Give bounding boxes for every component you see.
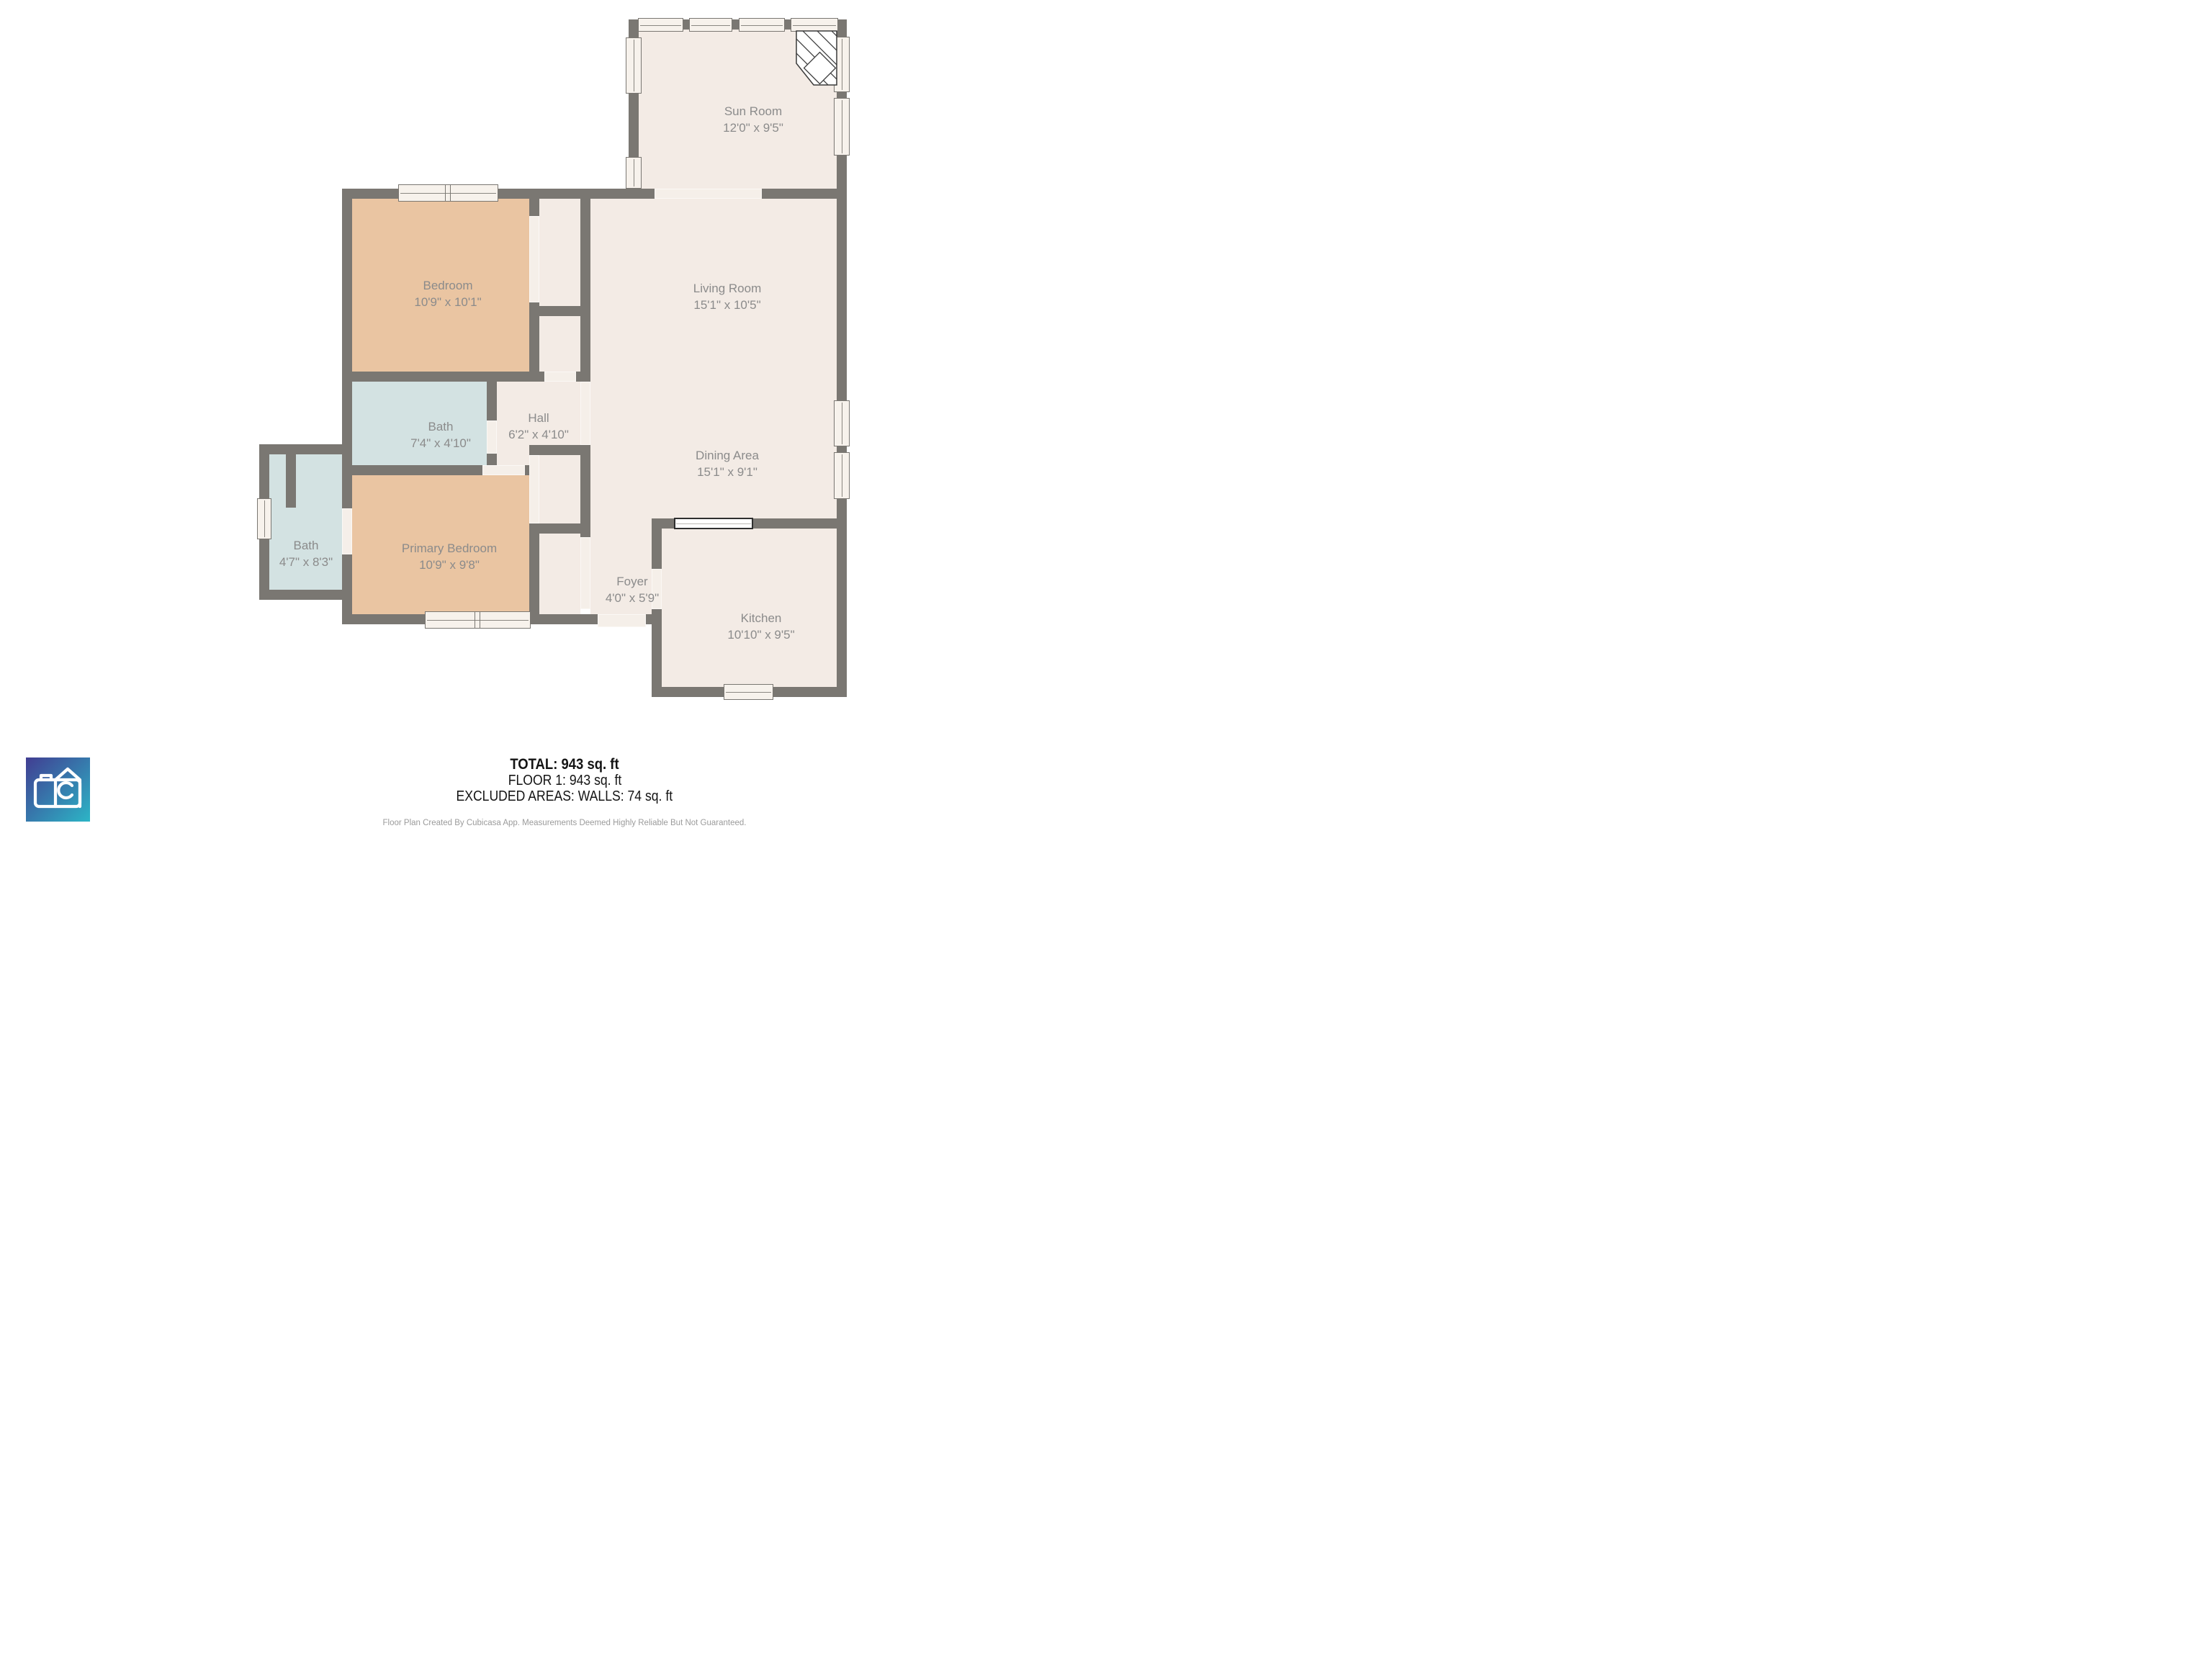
total-area-text: TOTAL: 943 sq. ft [0, 756, 1129, 773]
room-label-foyer: Foyer4'0" x 5'9" [606, 573, 659, 606]
opening-hall-dining [580, 382, 590, 445]
room-kitchen-floor [662, 529, 837, 687]
wall-segment [580, 445, 590, 537]
corner-hatch-icon [795, 30, 838, 86]
room-label-bath-2: Bath4'7" x 8'3" [279, 537, 333, 570]
wall-segment [525, 465, 529, 475]
floor-plan-page: Sun Room12'0" x 9'5" Bedroom10'9" x 10'1… [0, 0, 1129, 847]
wall-segment [580, 189, 590, 382]
wall-segment [487, 454, 497, 465]
window [724, 684, 773, 700]
window [834, 400, 850, 446]
room-label-bath: Bath7'4" x 4'10" [410, 418, 471, 451]
wall-segment [487, 382, 497, 421]
room-label-dining-area: Dining Area15'1" x 9'1" [696, 447, 759, 480]
room-label-sun-room: Sun Room12'0" x 9'5" [723, 103, 783, 136]
window [739, 18, 785, 32]
kitchen-counter [674, 518, 753, 529]
window [626, 37, 642, 94]
door-foyer-exterior [598, 614, 646, 627]
wall-segment [342, 189, 655, 199]
opening-corridor-foyer [580, 537, 590, 609]
window [834, 452, 850, 499]
wall-segment [529, 534, 539, 614]
door-closet-b [544, 372, 576, 382]
area-summary: TOTAL: 943 sq. ft FLOOR 1: 943 sq. ft EX… [0, 756, 1129, 804]
wall-segment [652, 609, 662, 697]
wall-segment [762, 189, 847, 199]
window-mullion [475, 611, 480, 629]
window [834, 98, 850, 156]
window [626, 157, 642, 189]
wall-segment [652, 518, 662, 569]
closet-a-floor [539, 199, 580, 306]
wall-segment [342, 465, 482, 475]
door-bedroom [529, 216, 539, 302]
window [638, 18, 683, 32]
excluded-area-text: EXCLUDED AREAS: WALLS: 74 sq. ft [0, 788, 1129, 804]
opening-sunroom-living [655, 189, 762, 199]
closet-c-floor [539, 455, 580, 523]
room-label-kitchen: Kitchen10'10" x 9'5" [727, 610, 794, 643]
wall-segment [529, 199, 539, 216]
wall-segment [259, 444, 352, 454]
wall-segment [342, 372, 544, 382]
room-label-bedroom: Bedroom10'9" x 10'1" [414, 277, 481, 310]
closet-b-floor [539, 316, 580, 372]
wall-segment [259, 590, 352, 600]
wall-segment [286, 454, 296, 508]
floor-area-text: FLOOR 1: 943 sq. ft [0, 773, 1129, 788]
wall-segment [342, 189, 352, 508]
door-bath-2 [342, 508, 352, 554]
door-primary-bedroom [482, 465, 525, 475]
opening-closet-c [529, 455, 539, 523]
closet-d-floor [539, 534, 580, 614]
disclaimer-text: Floor Plan Created By Cubicasa App. Meas… [0, 819, 1129, 827]
room-label-primary-bedroom: Primary Bedroom10'9" x 9'8" [402, 540, 497, 573]
window [257, 498, 271, 539]
window [689, 18, 732, 32]
room-label-hall: Hall6'2" x 4'10" [508, 410, 569, 443]
window-mullion [445, 184, 451, 202]
room-label-living-room: Living Room15'1" x 10'5" [693, 280, 762, 313]
door-bath [487, 421, 497, 454]
